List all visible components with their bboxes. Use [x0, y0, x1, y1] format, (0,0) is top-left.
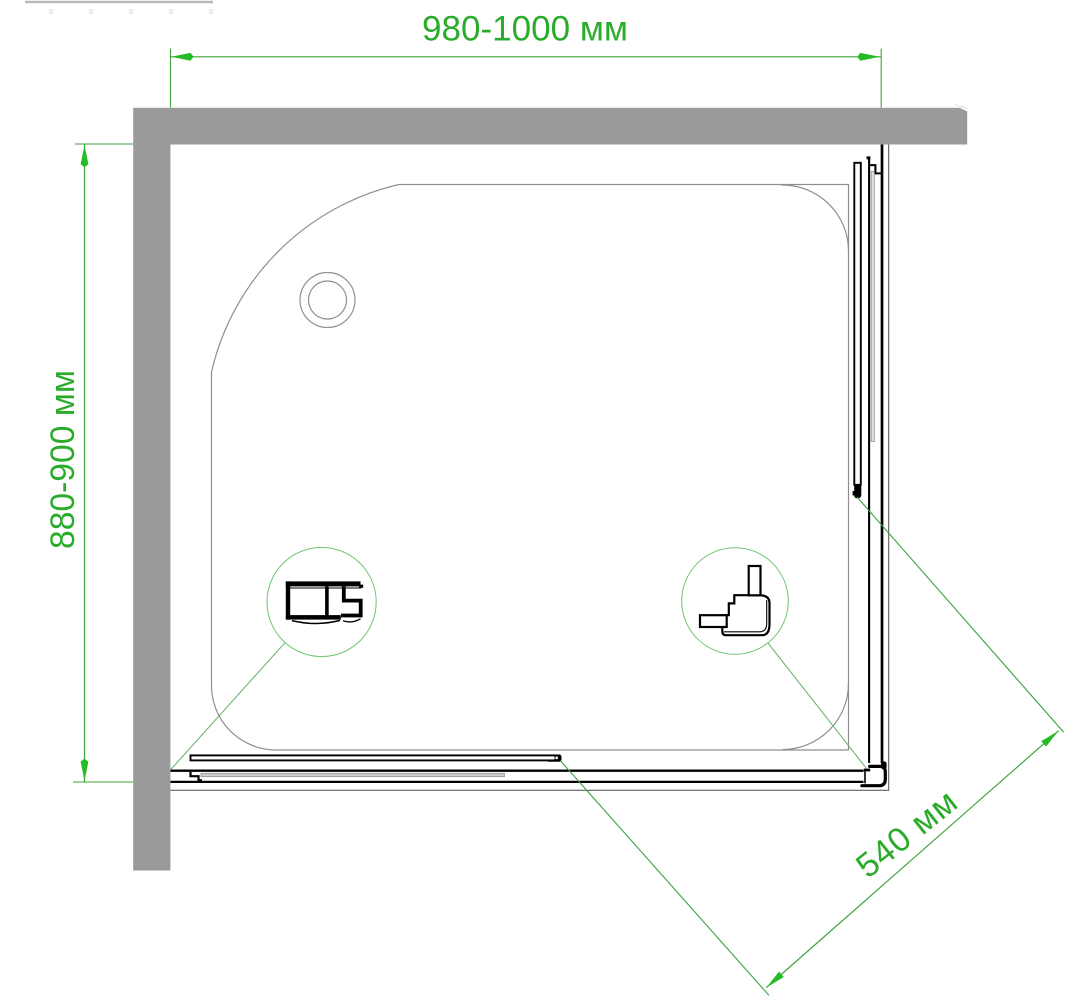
- svg-text:980-1000 мм: 980-1000 мм: [422, 9, 628, 49]
- svg-text:540 мм: 540 мм: [849, 782, 965, 885]
- svg-text:880-900 мм: 880-900 мм: [44, 370, 82, 549]
